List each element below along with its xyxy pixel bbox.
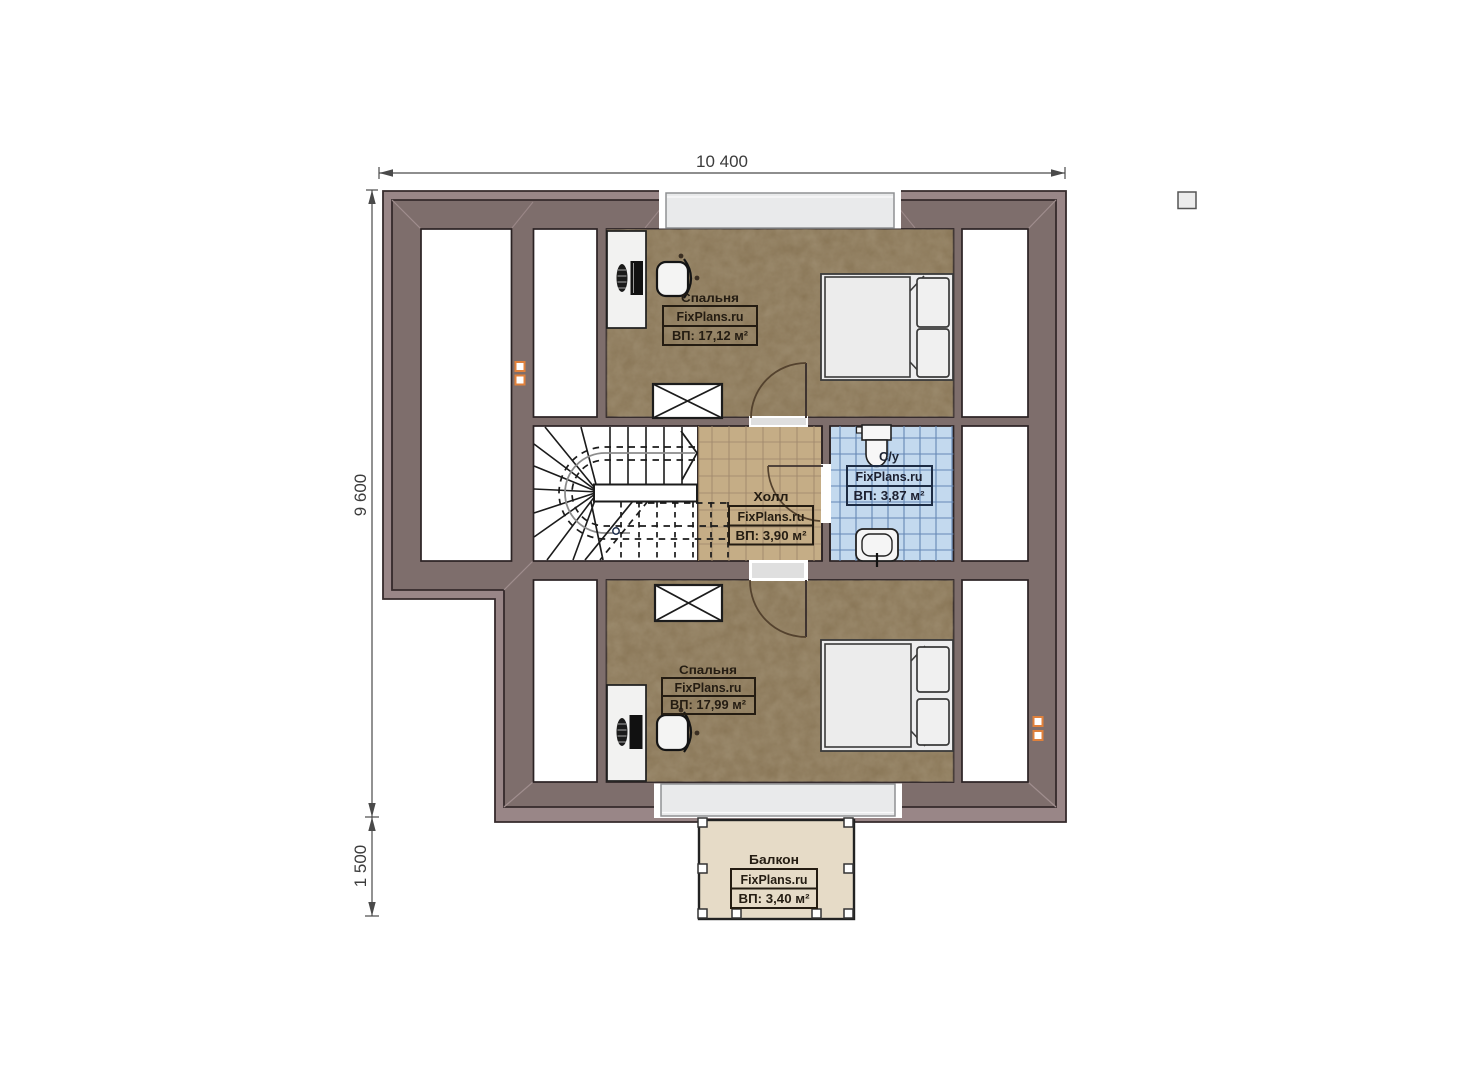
svg-text:ВП: 17,12 м²: ВП: 17,12 м² [672,329,748,343]
svg-text:10 400: 10 400 [696,152,748,171]
svg-text:ВП: 3,90 м²: ВП: 3,90 м² [736,529,807,543]
svg-text:ВП: 3,87 м²: ВП: 3,87 м² [854,489,925,503]
svg-text:Спальня: Спальня [681,291,739,305]
svg-text:С/у: С/у [879,450,899,464]
svg-text:FixPlans.ru: FixPlans.ru [675,680,742,695]
svg-text:Спальня: Спальня [679,663,737,677]
svg-text:9 600: 9 600 [351,474,370,517]
svg-text:1 500: 1 500 [351,845,370,888]
svg-text:FixPlans.ru: FixPlans.ru [856,469,923,484]
svg-text:Балкон: Балкон [749,853,799,867]
svg-text:ВП: 3,40 м²: ВП: 3,40 м² [739,892,810,906]
svg-text:FixPlans.ru: FixPlans.ru [738,509,805,524]
svg-text:Холл: Холл [754,490,789,504]
svg-text:FixPlans.ru: FixPlans.ru [741,872,808,887]
svg-text:ВП: 17,99 м²: ВП: 17,99 м² [670,698,746,712]
svg-text:FixPlans.ru: FixPlans.ru [677,309,744,324]
